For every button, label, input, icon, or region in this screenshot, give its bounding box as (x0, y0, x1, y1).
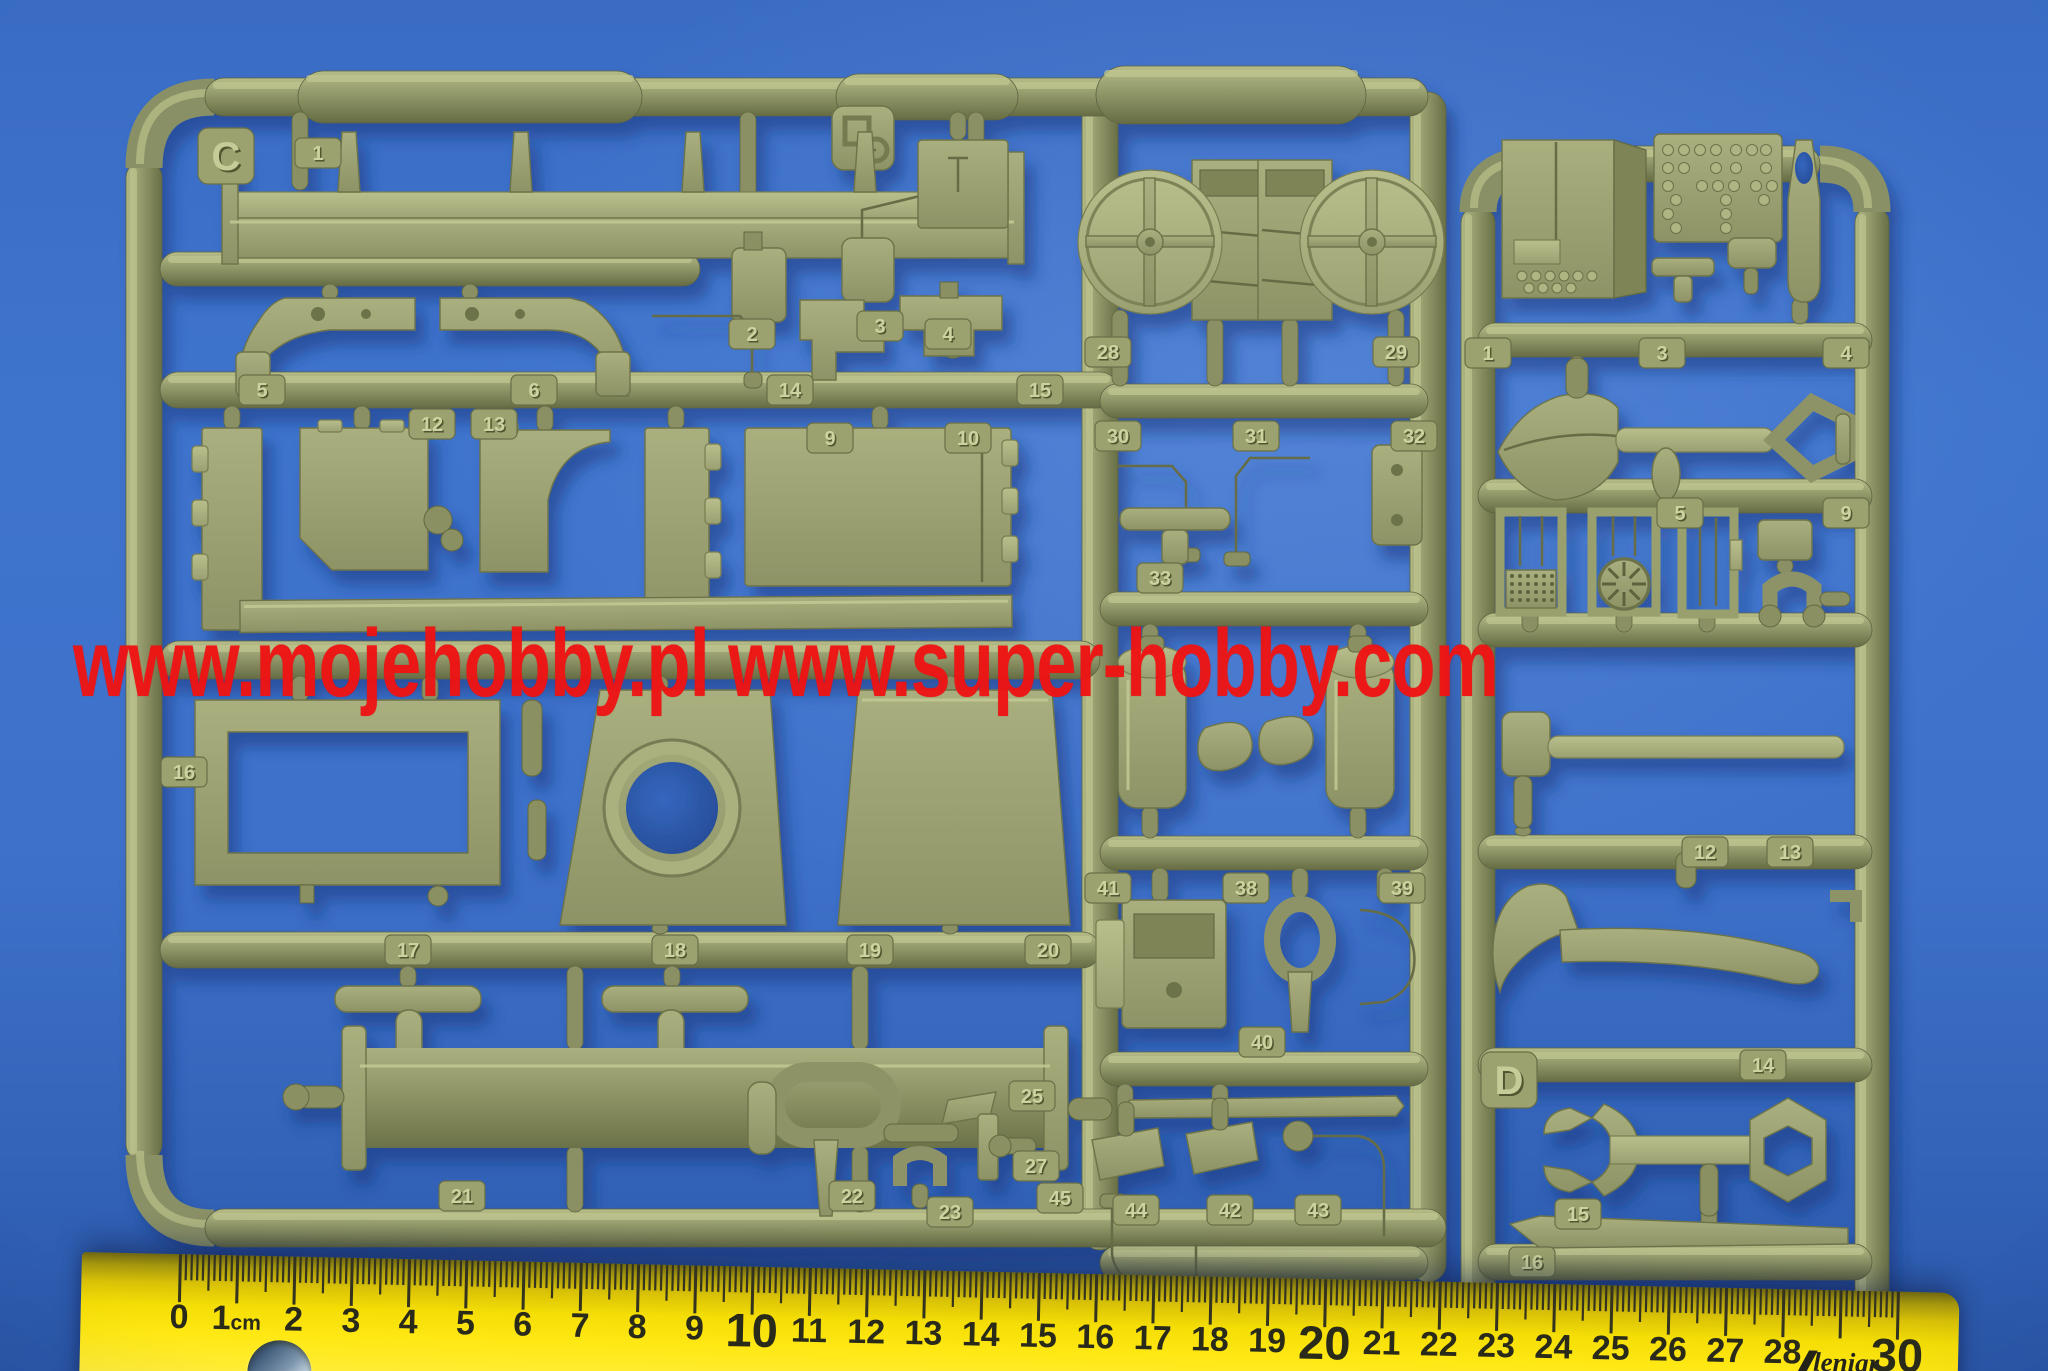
svg-text:6: 6 (528, 380, 539, 402)
ruler-number: 18 (1191, 1320, 1230, 1360)
svg-text:45: 45 (1049, 1188, 1071, 1210)
part-trapezoid-hatch-plain (838, 690, 1070, 925)
part-paddle-blade (1788, 140, 1820, 302)
part-number-tab: 99 (807, 423, 853, 453)
part-number-tab: 3333 (1137, 563, 1183, 593)
ruler-number: 23 (1477, 1326, 1516, 1366)
part-flat-plate (1372, 445, 1422, 545)
part-number-tab: 1919 (847, 935, 893, 965)
sprue-letter-tab: DD (1481, 1052, 1537, 1108)
part-number-tab: 3838 (1223, 873, 1269, 903)
ruler-number: 10 (725, 1302, 778, 1358)
part-number-tab: 55 (1657, 498, 1703, 528)
part-number-tab: 11 (295, 138, 341, 168)
svg-text:5: 5 (256, 380, 267, 402)
part-t-handle (1652, 258, 1714, 302)
svg-text:21: 21 (451, 1186, 473, 1208)
svg-text:22: 22 (841, 1186, 863, 1208)
ruler-number: 24 (1534, 1328, 1573, 1368)
part-number-tab: 3131 (1233, 421, 1279, 451)
svg-text:42: 42 (1219, 1200, 1241, 1222)
part-tow-ring (1272, 904, 1328, 1032)
svg-text:12: 12 (421, 414, 443, 436)
part-number-tab: 4141 (1085, 873, 1131, 903)
ruler-number: 28 (1763, 1333, 1802, 1371)
ruler-number: 1cm (211, 1299, 261, 1339)
part-number-tab: 2828 (1085, 337, 1131, 367)
svg-text:4: 4 (942, 324, 954, 346)
svg-text:15: 15 (1029, 380, 1051, 402)
part-number-tab: 33 (857, 311, 903, 341)
ruler-number: 7 (570, 1307, 590, 1346)
part-number-tab: 1818 (652, 935, 698, 965)
ruler-number: 0 (169, 1298, 189, 1337)
part-door-left (192, 428, 262, 630)
part-number-tab: 4242 (1207, 1195, 1253, 1225)
svg-text:3: 3 (1656, 343, 1667, 365)
svg-text:12: 12 (1694, 842, 1716, 864)
part-number-tab: 2121 (439, 1181, 485, 1211)
svg-text:33: 33 (1149, 568, 1171, 590)
part-number-tab: 3232 (1391, 421, 1437, 451)
svg-text:30: 30 (1107, 426, 1129, 448)
part-number-tab: 1313 (471, 409, 517, 439)
ruler-number: 11 (791, 1311, 828, 1351)
part-curved-hook (1360, 910, 1414, 1004)
part-number-tab: 2929 (1373, 337, 1419, 367)
part-number-tab: 11 (1465, 338, 1511, 368)
part-number-tab: 4444 (1113, 1195, 1159, 1225)
ruler-number: 21 (1362, 1324, 1401, 1364)
svg-text:43: 43 (1307, 1200, 1329, 1222)
svg-text:23: 23 (939, 1202, 961, 1224)
ruler-number: 3 (341, 1302, 361, 1341)
ruler-number: 27 (1706, 1331, 1745, 1371)
part-number-tab: 2525 (1009, 1081, 1055, 1111)
part-number-tab: 2727 (1013, 1151, 1059, 1181)
part-small-box (1758, 520, 1812, 560)
part-number-tab: 66 (511, 375, 557, 405)
part-number-tab: 1515 (1017, 375, 1063, 405)
svg-text:32: 32 (1403, 426, 1425, 448)
part-axe (1493, 852, 1819, 992)
svg-text:4: 4 (1840, 343, 1852, 365)
svg-text:13: 13 (483, 414, 505, 436)
svg-text:16: 16 (173, 762, 195, 784)
svg-text:31: 31 (1245, 426, 1267, 448)
ruler-number: 12 (847, 1313, 886, 1353)
part-number-tab: 1515 (1555, 1199, 1601, 1229)
ruler-number: 15 (1019, 1316, 1058, 1356)
svg-text:44: 44 (1125, 1200, 1148, 1222)
part-number-tab: 3939 (1379, 873, 1425, 903)
ruler-number: 16 (1076, 1318, 1115, 1358)
svg-text:D: D (1495, 1059, 1524, 1103)
svg-text:39: 39 (1391, 878, 1413, 900)
part-handles (1198, 716, 1313, 770)
part-number-tab: 1010 (945, 423, 991, 453)
part-number-tab: 4545 (1037, 1183, 1083, 1213)
part-number-tab: 1616 (161, 757, 207, 787)
ruler-number: 9 (685, 1309, 705, 1348)
svg-text:1: 1 (1482, 343, 1493, 365)
ruler-number: 2 (284, 1300, 304, 1339)
svg-text:9: 9 (824, 428, 835, 450)
sprue-letter-tab: CC (198, 128, 254, 184)
ruler-number: 6 (513, 1305, 533, 1344)
part-number-tab: 1313 (1767, 837, 1813, 867)
svg-text:27: 27 (1025, 1156, 1047, 1178)
shop-watermark-text: www.mojehobby.pl www.super-hobby.com (73, 616, 1498, 712)
svg-text:15: 15 (1567, 1204, 1589, 1226)
svg-text:16: 16 (1521, 1252, 1543, 1274)
part-thin-rod (1122, 1096, 1404, 1118)
part-t-valve (1120, 508, 1230, 564)
part-number-tab: 1414 (767, 375, 813, 405)
sprue-d (1461, 134, 1889, 1310)
part-number-tab: 1212 (409, 409, 455, 439)
ruler-number: 8 (627, 1308, 647, 1347)
part-number-tab: 33 (1639, 338, 1685, 368)
part-open-frame (195, 700, 500, 906)
ruler-number: 17 (1133, 1319, 1172, 1359)
part-number-tab: 1616 (1509, 1247, 1555, 1277)
svg-text:20: 20 (1037, 940, 1059, 962)
ruler-number: 26 (1649, 1330, 1688, 1370)
part-finned-rail (222, 132, 1024, 264)
ruler-number: 25 (1591, 1329, 1630, 1369)
part-l-pipe-b (1224, 458, 1310, 566)
ruler-number: 19 (1248, 1321, 1287, 1361)
part-hatch-concave-cut (480, 422, 610, 572)
part-grille-fan (1592, 512, 1656, 612)
part-hammer (1502, 712, 1844, 828)
part-number-tab: 55 (239, 375, 285, 405)
part-control-panel (1654, 134, 1782, 242)
part-number-tab: 44 (1823, 338, 1869, 368)
svg-text:28: 28 (1097, 342, 1119, 364)
ruler-number: 22 (1420, 1325, 1459, 1365)
svg-text:1: 1 (312, 143, 323, 165)
svg-text:38: 38 (1235, 878, 1257, 900)
svg-text:29: 29 (1385, 342, 1407, 364)
ruler-number: 20 (1298, 1315, 1351, 1371)
part-number-tab: 44 (925, 319, 971, 349)
part-square-hatch (300, 420, 428, 570)
ruler-number: 4 (398, 1303, 418, 1342)
svg-text:40: 40 (1251, 1032, 1273, 1054)
ruler-number: 5 (456, 1304, 476, 1343)
part-mallet-head (1728, 238, 1776, 294)
svg-text:14: 14 (1752, 1055, 1775, 1077)
part-l-hook (1830, 896, 1856, 922)
part-trapezoid-hatch-hole (560, 690, 786, 925)
ruler-number: 14 (961, 1315, 1000, 1355)
svg-text:14: 14 (779, 380, 802, 402)
part-number-tab: 4343 (1295, 1195, 1341, 1225)
svg-text:C: C (212, 135, 241, 179)
part-radio-box (1502, 140, 1646, 298)
svg-text:10: 10 (957, 428, 979, 450)
photo-stage: 1122334455661414151599101012121313161617… (0, 0, 2048, 1371)
part-number-tab: 1717 (385, 935, 431, 965)
part-number-tab: 2020 (1025, 935, 1071, 965)
svg-text:9: 9 (1840, 503, 1851, 525)
svg-text:41: 41 (1097, 878, 1119, 900)
part-number-tab: 1414 (1740, 1050, 1786, 1080)
part-number-tab: 3030 (1095, 421, 1141, 451)
svg-text:25: 25 (1021, 1086, 1043, 1108)
svg-text:2: 2 (746, 324, 757, 346)
part-grille-mesh (1500, 512, 1562, 612)
svg-text:19: 19 (859, 940, 881, 962)
part-number-tab: 2323 (927, 1197, 973, 1227)
svg-text:5: 5 (1674, 503, 1685, 525)
part-number-tab: 4040 (1239, 1027, 1285, 1057)
part-number-tab: 2222 (829, 1181, 875, 1211)
part-number-tab: 1212 (1682, 837, 1728, 867)
part-wrench (1544, 1098, 1826, 1216)
svg-text:13: 13 (1779, 842, 1801, 864)
svg-text:3: 3 (874, 316, 885, 338)
svg-text:18: 18 (664, 940, 686, 962)
part-number-tab: 22 (729, 319, 775, 349)
ruler-brand-logo: ///leniar (1800, 1346, 1879, 1371)
ruler-number: 13 (904, 1314, 943, 1354)
part-number-tab: 99 (1823, 498, 1869, 528)
svg-text:17: 17 (397, 940, 419, 962)
